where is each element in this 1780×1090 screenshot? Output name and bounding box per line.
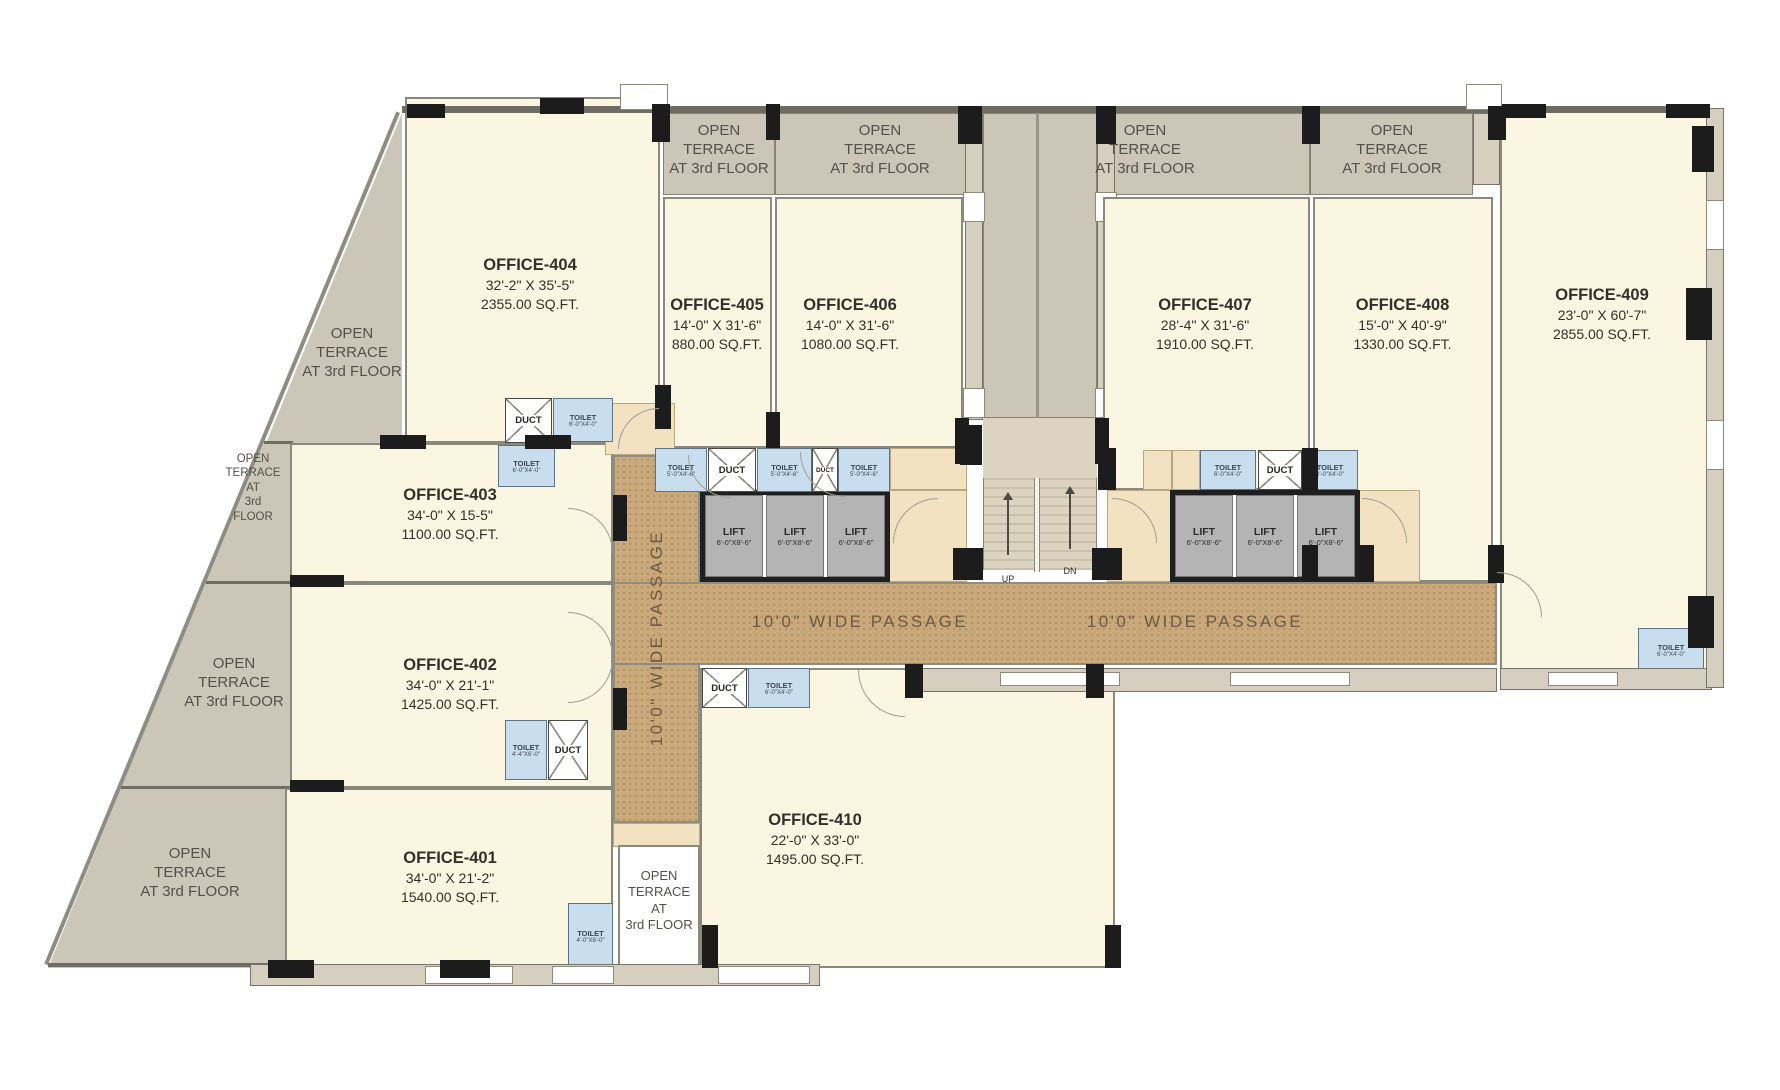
column xyxy=(905,664,923,698)
column xyxy=(613,495,627,541)
terrace-label: OPEN TERRACE AT 3rd FLOOR xyxy=(1322,122,1462,178)
column xyxy=(958,106,982,144)
column xyxy=(613,688,627,730)
passage-label-vertical: 10'0" WIDE PASSAGE xyxy=(646,528,668,748)
window xyxy=(718,966,810,984)
passage-label-right: 10'0" WIDE PASSAGE xyxy=(1075,611,1315,633)
stair-down-arrow xyxy=(1069,494,1071,549)
column xyxy=(1502,104,1546,118)
column xyxy=(290,780,344,792)
column xyxy=(702,925,718,968)
column xyxy=(1086,664,1104,698)
column xyxy=(525,435,571,449)
terrace-label: OPEN TERRACE AT 3rd FLOOR xyxy=(663,122,775,178)
stair-center-divider xyxy=(1034,478,1040,572)
toilet: TOILET4'-4"X6'-0" xyxy=(505,720,547,780)
lift: LIFT6'-0"X8'-6" xyxy=(705,495,763,577)
lobby xyxy=(1172,450,1200,490)
label-office-401: OFFICE-40134'-0" X 21'-2"1540.00 SQ.FT. xyxy=(350,848,550,906)
terrace-label: OPEN TERRACE AT 3rd FLOOR xyxy=(115,845,265,901)
label-office-404: OFFICE-40432'-2" X 35'-5"2355.00 SQ.FT. xyxy=(430,255,630,313)
terrace-label: OPEN TERRACE AT 3rd FLOOR xyxy=(296,325,408,381)
stair-up-arrowhead xyxy=(1003,492,1013,500)
terrace-label: OPEN TERRACE AT 3rd FLOOR xyxy=(1075,122,1215,178)
column xyxy=(953,548,983,580)
lobby xyxy=(613,823,700,847)
stair-landing xyxy=(983,418,1097,478)
duct: DUCT xyxy=(548,720,588,780)
terrace-label: OPEN TERRACE AT 3rd FLOOR xyxy=(810,122,950,178)
shaft-window xyxy=(963,388,985,418)
stair-shaft-wall-left xyxy=(965,113,983,420)
label-office-410: OFFICE-41022'-0" X 33'-0"1495.00 SQ.FT. xyxy=(715,810,915,868)
lift: LIFT6'-0"X8'-6" xyxy=(1175,495,1233,577)
stair-shaft-divider xyxy=(1036,113,1039,418)
lift: LIFT6'-0"X8'-6" xyxy=(766,495,824,577)
duct: DUCT xyxy=(702,668,747,708)
toilet: TOILET6'-0"X4'-0" xyxy=(1200,450,1256,490)
lift-block-right: LIFT6'-0"X8'-6" LIFT6'-0"X8'-6" LIFT6'-0… xyxy=(1170,490,1360,582)
label-office-403: OFFICE-40334'-0" X 15-5"1100.00 SQ.FT. xyxy=(350,485,550,543)
column xyxy=(766,412,780,448)
column xyxy=(380,435,426,449)
duct: DUCT xyxy=(1258,450,1302,490)
passage-label-left: 10'0" WIDE PASSAGE xyxy=(740,611,980,633)
column xyxy=(1688,596,1714,648)
label-office-407: OFFICE-40728'-4" X 31'-6"1910.00 SQ.FT. xyxy=(1115,295,1295,353)
column xyxy=(1302,106,1320,144)
column xyxy=(268,960,314,978)
label-office-408: OFFICE-40815'-0" X 40'-9"1330.00 SQ.FT. xyxy=(1320,295,1485,353)
window xyxy=(1230,672,1350,686)
terrace-divider-line xyxy=(206,581,293,584)
column xyxy=(290,575,344,587)
lobby xyxy=(1143,450,1172,490)
label-office-405: OFFICE-40514'-0" X 31'-6"880.00 SQ.FT. xyxy=(647,295,787,353)
terrace-divider-line xyxy=(121,786,290,789)
terrace-divider-line xyxy=(264,441,293,444)
toilet: TOILET6'-0"X4'-0" xyxy=(498,445,555,487)
lift-block-left: LIFT6'-0"X8'-6" LIFT6'-0"X8'-6" LIFT6'-0… xyxy=(700,490,890,582)
toilet: TOILET5'-0"X4'-6" xyxy=(838,448,890,492)
stair-up-label: UP xyxy=(995,574,1021,584)
shaft-window xyxy=(963,192,985,222)
window xyxy=(1706,420,1724,470)
toilet: TOILET4'-0"X6'-0" xyxy=(568,903,613,970)
stair-treads xyxy=(983,478,1097,570)
column xyxy=(1302,545,1318,582)
stair-down-label: DN xyxy=(1057,566,1083,576)
label-office-402: OFFICE-40234'-0" X 21'-1"1425.00 SQ.FT. xyxy=(350,655,550,713)
column xyxy=(1105,925,1121,968)
column xyxy=(540,98,584,114)
terrace-label: OPEN TERRACE AT 3rd FLOOR xyxy=(620,868,698,933)
stair-down-arrowhead xyxy=(1065,486,1075,494)
label-office-406: OFFICE-40614'-0" X 31'-6"1080.00 SQ.FT. xyxy=(775,295,925,353)
column xyxy=(407,104,445,118)
column xyxy=(1666,104,1710,118)
column xyxy=(1302,448,1318,490)
column xyxy=(1358,545,1374,582)
column xyxy=(1092,548,1122,580)
column xyxy=(440,960,490,978)
column xyxy=(955,418,969,464)
floor-plan: UP DN LIFT6'-0"X8'-6" LIFT6'-0"X8'-6" LI… xyxy=(0,0,1780,1090)
label-office-409: OFFICE-40923'-0" X 60'-7"2855.00 SQ.FT. xyxy=(1512,285,1692,343)
stair-up-arrow xyxy=(1007,500,1009,555)
terrace-label: OPEN TERRACE AT 3rd FLOOR xyxy=(215,452,291,524)
window xyxy=(552,966,614,984)
lift: LIFT6'-0"X8'-6" xyxy=(1236,495,1294,577)
terrace-beside-office-404 xyxy=(266,113,402,443)
window xyxy=(1548,672,1618,686)
toilet: TOILET6'-0"X4'-0" xyxy=(748,668,810,708)
column xyxy=(1095,418,1109,464)
lift: LIFT6'-0"X8'-6" xyxy=(827,495,885,577)
terrace-label: OPEN TERRACE AT 3rd FLOOR xyxy=(178,655,290,711)
window xyxy=(1706,200,1724,250)
column xyxy=(1692,126,1714,172)
